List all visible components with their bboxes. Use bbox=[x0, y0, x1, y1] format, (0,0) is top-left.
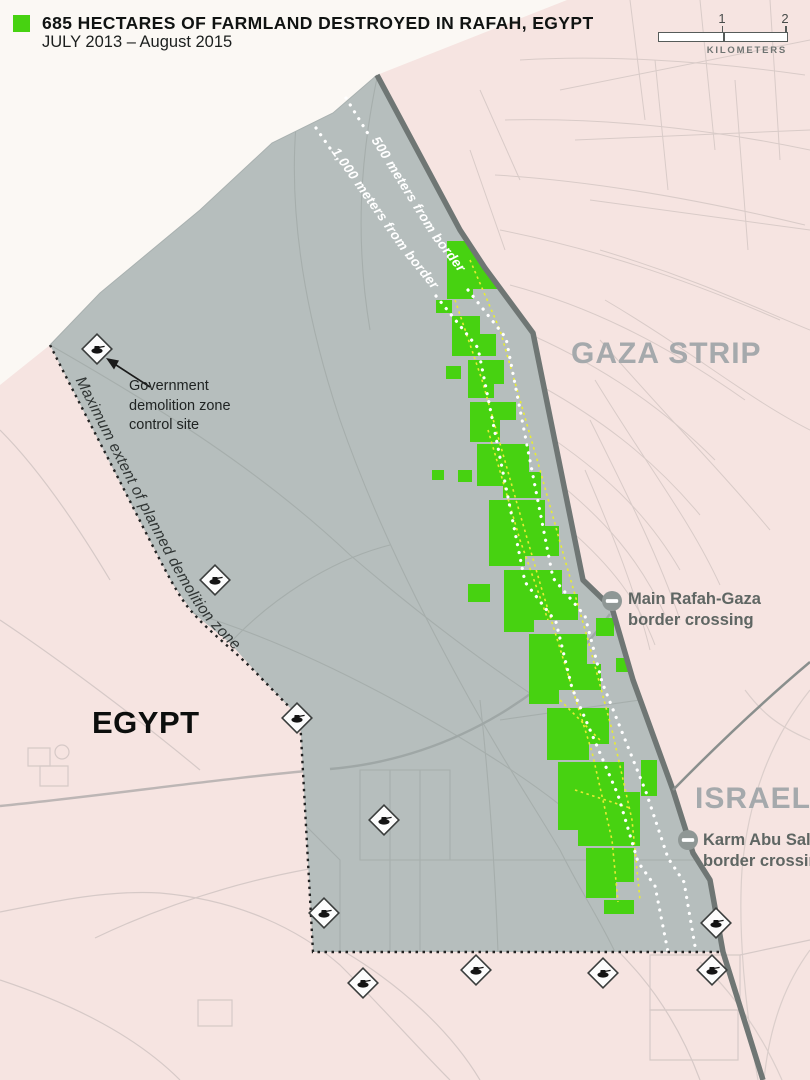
page-subtitle: JULY 2013 – August 2015 bbox=[42, 33, 232, 52]
main-crossing-icon bbox=[602, 591, 622, 611]
map-page: 500 meters from border 1,000 meters from… bbox=[0, 0, 810, 1080]
farmland-legend-swatch bbox=[13, 15, 30, 32]
region-label-egypt: EGYPT bbox=[92, 705, 200, 741]
karm-crossing-label: Karm Abu Salem border crossing bbox=[703, 830, 810, 871]
scale-bar-divider bbox=[723, 33, 725, 41]
control-site-label: Government demolition zone control site bbox=[129, 377, 254, 436]
page-title: 685 HECTARES OF FARMLAND DESTROYED IN RA… bbox=[42, 13, 594, 34]
scale-tick-label-1: 1 bbox=[714, 11, 730, 26]
scale-tick-label-2: 2 bbox=[777, 11, 793, 26]
scale-bar: 1 2 KILOMETERS bbox=[657, 11, 789, 53]
map-svg: 500 meters from border 1,000 meters from… bbox=[0, 0, 810, 1080]
main-crossing-label: Main Rafah-Gaza border crossing bbox=[628, 589, 778, 630]
region-label-gaza: GAZA STRIP bbox=[571, 337, 762, 371]
region-label-israel: ISRAEL bbox=[695, 782, 810, 816]
scale-unit-label: KILOMETERS bbox=[657, 45, 787, 56]
scale-bar-box bbox=[658, 32, 788, 42]
karm-crossing-icon bbox=[678, 830, 698, 850]
